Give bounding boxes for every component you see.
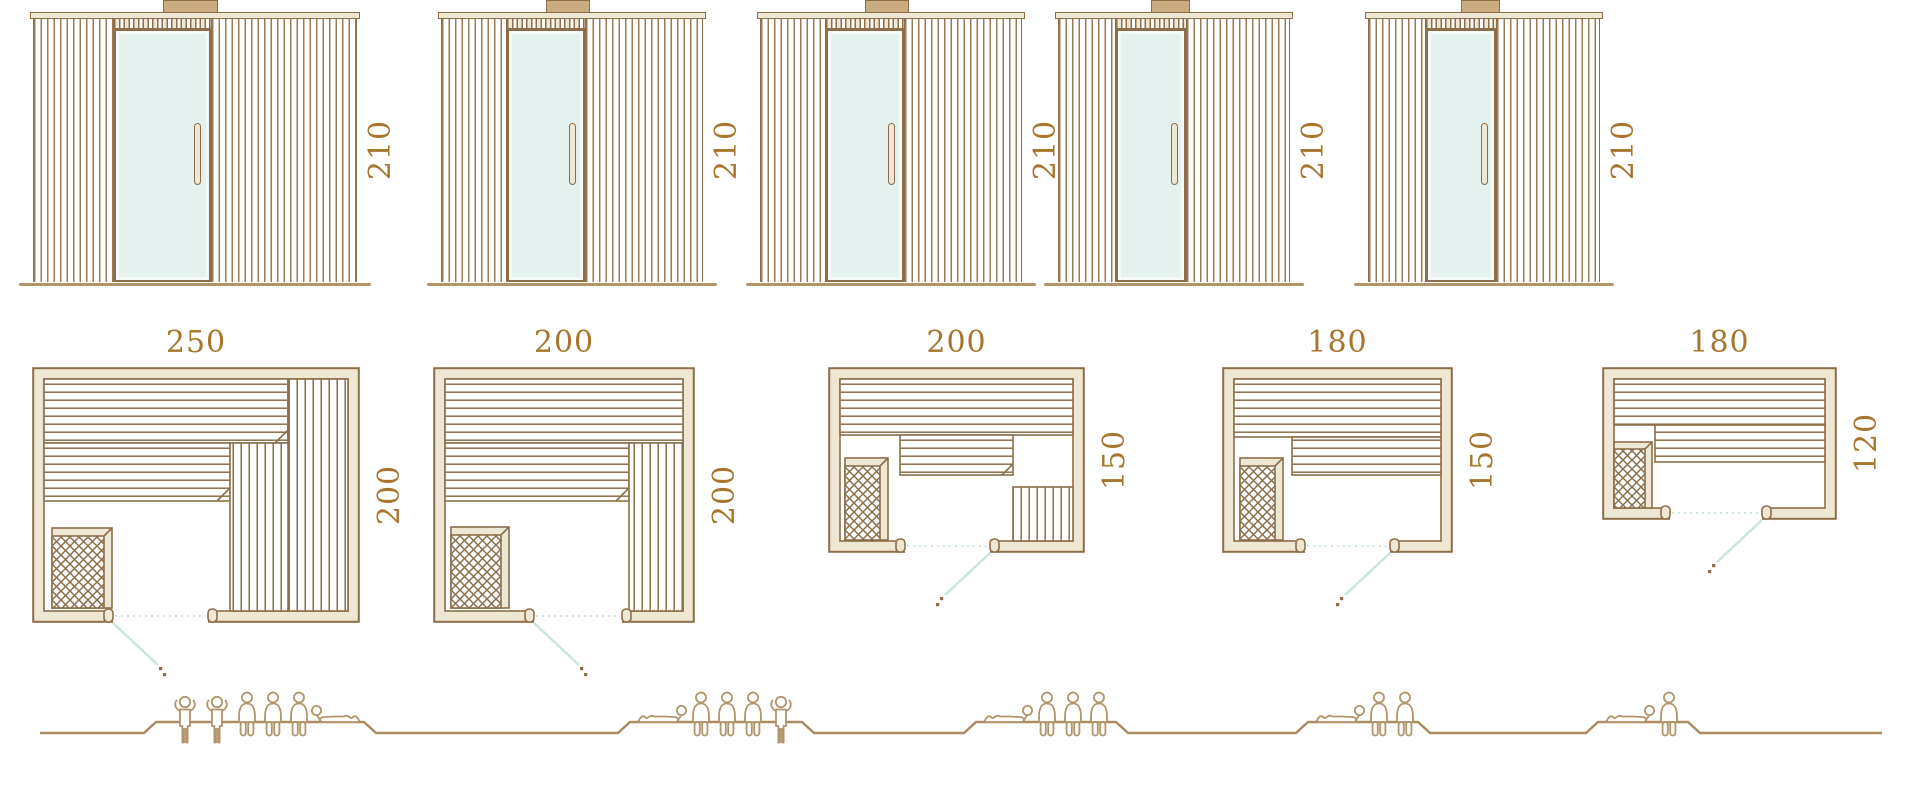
top-cap bbox=[1365, 12, 1603, 19]
sauna-4-floorplan bbox=[1222, 367, 1453, 615]
dentil-trim bbox=[1426, 19, 1496, 29]
door-handle bbox=[194, 123, 201, 185]
heater bbox=[451, 527, 509, 608]
door-swing bbox=[945, 553, 990, 595]
glass-door bbox=[1426, 29, 1496, 282]
top-cap bbox=[1055, 12, 1293, 19]
door-opening bbox=[1305, 538, 1390, 555]
door-swing bbox=[113, 623, 158, 665]
sauna-3-elevation bbox=[760, 12, 1022, 282]
right-wall-slats bbox=[585, 19, 703, 282]
door-opening bbox=[905, 538, 990, 555]
door-handle bbox=[569, 123, 576, 185]
right-wall-slats bbox=[211, 19, 357, 282]
heater bbox=[845, 458, 888, 540]
person-reclining-left-icon bbox=[636, 703, 688, 725]
ground-line bbox=[19, 283, 371, 286]
ground-line bbox=[1354, 283, 1614, 286]
back-bench bbox=[840, 379, 1073, 435]
plan-width-label: 200 bbox=[828, 327, 1085, 359]
ground-line bbox=[427, 283, 717, 286]
lower-bench bbox=[900, 435, 1013, 475]
plan-depth-label: 150 bbox=[1099, 425, 1131, 495]
person-reclining-right-icon bbox=[310, 703, 362, 725]
back-lower-bench bbox=[445, 443, 629, 501]
door bbox=[507, 19, 586, 282]
plan-width-label: 200 bbox=[433, 327, 695, 359]
door-swing bbox=[1345, 553, 1390, 595]
capacity-group-2 bbox=[636, 680, 896, 760]
left-wall-slats bbox=[441, 19, 507, 282]
glass-door bbox=[826, 29, 905, 282]
plan-depth-label: 150 bbox=[1467, 425, 1499, 495]
door-swing bbox=[1717, 520, 1762, 562]
ground-line bbox=[1044, 283, 1304, 286]
person-seated-icon bbox=[1084, 691, 1114, 737]
right-wall-slats bbox=[1496, 19, 1600, 282]
left-wall-slats bbox=[33, 19, 114, 282]
dentil-trim bbox=[1116, 19, 1186, 29]
top-cap bbox=[757, 12, 1025, 19]
back-bench bbox=[1234, 379, 1441, 437]
right-upper-bench bbox=[288, 379, 348, 611]
door bbox=[826, 19, 905, 282]
heater bbox=[1614, 442, 1652, 508]
dentil-trim bbox=[507, 19, 586, 29]
elevation-height-label: 210 bbox=[1298, 115, 1330, 185]
capacity-group-4 bbox=[1314, 680, 1574, 760]
right-lower-bench bbox=[230, 443, 288, 611]
door-handle bbox=[888, 123, 895, 185]
sauna-5-floorplan bbox=[1602, 367, 1837, 582]
heater bbox=[52, 528, 112, 608]
person-seated-icon bbox=[1390, 691, 1420, 737]
person-standing-icon bbox=[764, 695, 798, 745]
plan-depth-label: 200 bbox=[709, 460, 741, 530]
top-cap bbox=[438, 12, 706, 19]
left-wall-slats bbox=[1058, 19, 1116, 282]
left-wall-slats bbox=[760, 19, 826, 282]
heater bbox=[1240, 458, 1283, 540]
plan-depth-label: 200 bbox=[374, 460, 406, 530]
capacity-group-3 bbox=[982, 680, 1242, 760]
right-wall-slats bbox=[904, 19, 1022, 282]
sauna-2-elevation bbox=[441, 12, 703, 282]
door bbox=[1426, 19, 1496, 282]
sauna-2-floorplan bbox=[433, 367, 695, 685]
sauna-1-elevation bbox=[33, 12, 357, 282]
lower-bench bbox=[1292, 437, 1441, 475]
back-upper-bench bbox=[445, 379, 683, 443]
sauna-lineup-diagram: 210 210 210 bbox=[0, 0, 1920, 789]
person-reclining-left-icon bbox=[1314, 703, 1366, 725]
glass-door bbox=[1116, 29, 1186, 282]
glass-door bbox=[114, 29, 211, 282]
dentil-trim bbox=[826, 19, 905, 29]
capacity-group-1 bbox=[168, 680, 428, 760]
capacity-group-5 bbox=[1604, 680, 1864, 760]
sauna-3-floorplan bbox=[828, 367, 1085, 615]
person-reclining-left-icon bbox=[1604, 703, 1656, 725]
person-reclining-left-icon bbox=[982, 703, 1034, 725]
plan-width-label: 180 bbox=[1222, 327, 1453, 359]
plan-width-label: 180 bbox=[1602, 327, 1837, 359]
elevation-height-label: 210 bbox=[711, 115, 743, 185]
back-lower-bench bbox=[44, 443, 230, 501]
dentil-trim bbox=[114, 19, 211, 29]
plan-depth-label: 120 bbox=[1851, 408, 1883, 478]
left-wall-slats bbox=[1368, 19, 1426, 282]
door bbox=[1116, 19, 1186, 282]
back-upper-bench bbox=[44, 379, 288, 443]
right-wall-slats bbox=[1186, 19, 1290, 282]
person-standing-icon bbox=[168, 695, 202, 745]
elevation-height-label: 210 bbox=[1608, 115, 1640, 185]
plan-width-label: 250 bbox=[32, 327, 360, 359]
ground-line bbox=[746, 283, 1036, 286]
lower-bench bbox=[1655, 425, 1825, 462]
sauna-4-elevation bbox=[1058, 12, 1290, 282]
door-handle bbox=[1481, 123, 1488, 185]
door bbox=[114, 19, 211, 282]
glass-door bbox=[507, 29, 586, 282]
elevation-height-label: 210 bbox=[365, 115, 397, 185]
door-handle bbox=[1171, 123, 1178, 185]
back-bench bbox=[1614, 379, 1825, 425]
person-standing-icon bbox=[200, 695, 234, 745]
person-seated-icon bbox=[1654, 691, 1684, 737]
door-swing bbox=[534, 623, 579, 665]
top-cap bbox=[30, 12, 360, 19]
sauna-5-elevation bbox=[1368, 12, 1600, 282]
right-bench bbox=[629, 443, 683, 611]
right-bench bbox=[1013, 487, 1073, 541]
sauna-1-floorplan bbox=[32, 367, 360, 685]
